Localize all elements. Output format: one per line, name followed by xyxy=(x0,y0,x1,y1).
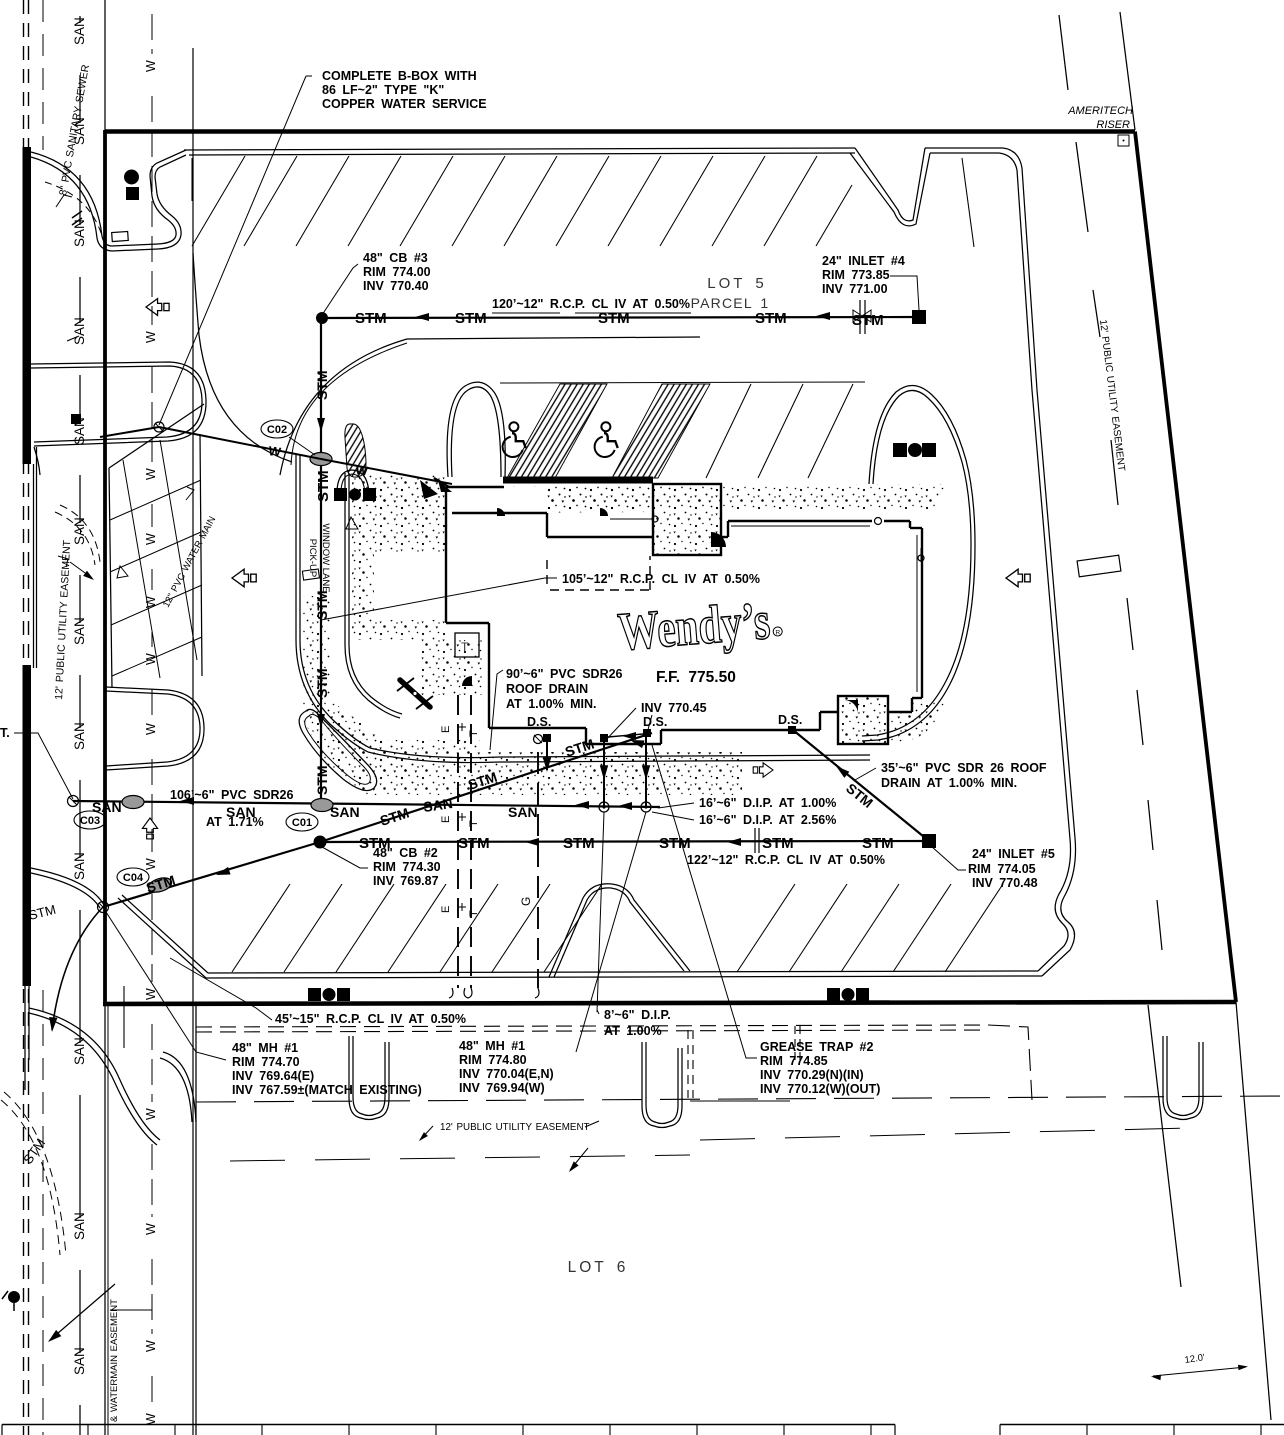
svg-text:INV 767.59±(MATCH EXISTING): INV 767.59±(MATCH EXISTING) xyxy=(232,1083,422,1097)
svg-text:16’~6" D.I.P. AT 2.56%: 16’~6" D.I.P. AT 2.56% xyxy=(699,813,836,827)
svg-text:T.: T. xyxy=(0,726,10,740)
svg-text:90’~6" PVC SDR26: 90’~6" PVC SDR26 xyxy=(506,667,623,681)
svg-text:PICK-UP: PICK-UP xyxy=(307,539,318,578)
svg-text:INV 770.45: INV 770.45 xyxy=(641,701,707,715)
svg-text:AT 1.71%: AT 1.71% xyxy=(206,815,264,829)
svg-text:STM: STM xyxy=(852,312,884,329)
svg-text:SAN: SAN xyxy=(330,804,360,820)
svg-text:W: W xyxy=(144,60,158,72)
svg-text:W: W xyxy=(144,858,158,870)
svg-text:D.S.: D.S. xyxy=(527,715,551,729)
svg-text:E: E xyxy=(440,816,452,823)
svg-text:RIM 774.80: RIM 774.80 xyxy=(459,1053,527,1067)
svg-text:T: T xyxy=(468,820,480,827)
svg-text:INV 769.94(W): INV 769.94(W) xyxy=(459,1081,545,1095)
svg-text:C01: C01 xyxy=(292,817,312,829)
svg-text:24" INLET #4: 24" INLET #4 xyxy=(822,254,905,268)
svg-text:STM: STM xyxy=(458,835,490,852)
svg-text:LOT 5: LOT 5 xyxy=(707,275,766,292)
svg-text:T: T xyxy=(468,910,480,917)
svg-text:122’~12" R.C.P. CL IV AT 0.50%: 122’~12" R.C.P. CL IV AT 0.50% xyxy=(687,853,885,867)
svg-text:105’~12" R.C.P. CL IV AT 0.50%: 105’~12" R.C.P. CL IV AT 0.50% xyxy=(562,572,760,586)
svg-text:RIM 774.85: RIM 774.85 xyxy=(760,1054,828,1068)
svg-text:INV 770.04(E,N): INV 770.04(E,N) xyxy=(459,1067,554,1081)
svg-text:SAN: SAN xyxy=(72,852,87,880)
svg-text:RIM 774.70: RIM 774.70 xyxy=(232,1055,300,1069)
svg-text:48" MH #1: 48" MH #1 xyxy=(232,1041,298,1055)
svg-text:SAN: SAN xyxy=(508,804,538,820)
svg-text:INV 769.64(E): INV 769.64(E) xyxy=(232,1069,314,1083)
svg-text:C02: C02 xyxy=(267,424,287,436)
svg-text:T: T xyxy=(461,640,469,654)
svg-text:G: G xyxy=(519,897,533,906)
svg-text:48" CB #3: 48" CB #3 xyxy=(363,251,428,265)
svg-text:INV 769.87: INV 769.87 xyxy=(373,874,439,888)
svg-text:W: W xyxy=(144,1223,158,1235)
svg-text:ROOF DRAIN: ROOF DRAIN xyxy=(506,682,588,696)
svg-text:86 LF~2" TYPE "K": 86 LF~2" TYPE "K" xyxy=(322,83,444,97)
svg-text:F.F. 775.50: F.F. 775.50 xyxy=(656,669,736,686)
svg-text:SAN: SAN xyxy=(72,1212,87,1240)
svg-text:D.S.: D.S. xyxy=(778,713,802,727)
svg-text:STM: STM xyxy=(314,668,330,698)
svg-text:45’~15" R.C.P. CL IV AT 0.50%: 45’~15" R.C.P. CL IV AT 0.50% xyxy=(275,1012,466,1026)
svg-text:STM: STM xyxy=(755,310,787,327)
svg-text:DRAIN AT 1.00% MIN.: DRAIN AT 1.00% MIN. xyxy=(881,776,1017,790)
svg-text:RIM 773.85: RIM 773.85 xyxy=(822,268,890,282)
svg-text:STM: STM xyxy=(314,370,330,400)
svg-text:12' PUBLIC UTILITY EASEMENT: 12' PUBLIC UTILITY EASEMENT xyxy=(440,1122,590,1133)
svg-text:SAN: SAN xyxy=(72,722,87,750)
svg-text:AT 1.00% MIN.: AT 1.00% MIN. xyxy=(506,697,597,711)
svg-text:D.S.: D.S. xyxy=(643,715,667,729)
svg-text:STM: STM xyxy=(862,835,894,852)
svg-text:INV 770.48: INV 770.48 xyxy=(972,876,1038,890)
svg-text:C04: C04 xyxy=(123,872,144,884)
svg-text:W: W xyxy=(144,1413,158,1425)
svg-text:E: E xyxy=(440,726,452,733)
svg-text:AMERITECH: AMERITECH xyxy=(1067,105,1133,117)
svg-text:& WATERMAIN EASEMENT: & WATERMAIN EASEMENT xyxy=(109,1299,120,1422)
svg-text:106’~6" PVC SDR26: 106’~6" PVC SDR26 xyxy=(170,788,293,802)
svg-text:SAN: SAN xyxy=(72,1347,87,1375)
svg-text:W: W xyxy=(144,331,158,343)
svg-text:Wendy’s: Wendy’s xyxy=(616,590,772,662)
svg-text:LOT 6: LOT 6 xyxy=(568,1259,629,1276)
svg-text:48" MH #1: 48" MH #1 xyxy=(459,1039,525,1053)
svg-text:R: R xyxy=(775,629,781,636)
svg-text:STM: STM xyxy=(314,590,330,620)
svg-text:COPPER WATER SERVICE: COPPER WATER SERVICE xyxy=(322,97,487,111)
svg-text:W: W xyxy=(144,533,158,545)
svg-text:24" INLET #5: 24" INLET #5 xyxy=(972,847,1055,861)
svg-text:COMPLETE B-BOX WITH: COMPLETE B-BOX WITH xyxy=(322,69,477,83)
svg-text:GREASE TRAP #2: GREASE TRAP #2 xyxy=(760,1040,873,1054)
svg-text:STM: STM xyxy=(314,765,330,795)
svg-text:48" CB #2: 48" CB #2 xyxy=(373,846,438,860)
svg-text:C03: C03 xyxy=(80,815,100,827)
svg-text:INV 770.12(W)(OUT): INV 770.12(W)(OUT) xyxy=(760,1082,880,1096)
svg-text:INV 771.00: INV 771.00 xyxy=(822,282,888,296)
svg-text:W: W xyxy=(144,1340,158,1352)
svg-text:RIM 774.30: RIM 774.30 xyxy=(373,860,441,874)
svg-text:STM: STM xyxy=(455,310,487,327)
svg-text:STM: STM xyxy=(355,310,387,327)
svg-text:STM: STM xyxy=(563,835,595,852)
svg-text:STM: STM xyxy=(762,835,794,852)
svg-text:SAN: SAN xyxy=(72,617,87,645)
svg-text:PARCEL 1: PARCEL 1 xyxy=(691,295,770,311)
svg-text:T: T xyxy=(468,730,480,737)
svg-text:16’~6" D.I.P. AT 1.00%: 16’~6" D.I.P. AT 1.00% xyxy=(699,796,836,810)
svg-text:E: E xyxy=(440,906,452,913)
svg-text:SAN: SAN xyxy=(72,17,87,45)
svg-text:SAN: SAN xyxy=(72,317,87,345)
svg-text:RISER: RISER xyxy=(1096,119,1130,131)
svg-text:W: W xyxy=(144,723,158,735)
svg-text:INV 770.40: INV 770.40 xyxy=(363,279,429,293)
svg-text:STM: STM xyxy=(659,835,691,852)
svg-text:35’~6" PVC SDR 26 ROOF: 35’~6" PVC SDR 26 ROOF xyxy=(881,761,1047,775)
svg-text:W: W xyxy=(144,468,158,480)
svg-text:SAN: SAN xyxy=(92,799,122,815)
svg-text:8’~6" D.I.P.: 8’~6" D.I.P. xyxy=(604,1008,671,1022)
svg-text:INV 770.29(N)(IN): INV 770.29(N)(IN) xyxy=(760,1068,864,1082)
svg-text:W: W xyxy=(144,1108,158,1120)
svg-text:STM: STM xyxy=(315,470,332,502)
svg-text:RIM 774.05: RIM 774.05 xyxy=(968,862,1036,876)
svg-text:RIM 774.00: RIM 774.00 xyxy=(363,265,431,279)
svg-text:SAN: SAN xyxy=(72,517,87,545)
svg-text:120’~12" R.C.P. CL IV AT 0.50%: 120’~12" R.C.P. CL IV AT 0.50% xyxy=(492,297,690,311)
